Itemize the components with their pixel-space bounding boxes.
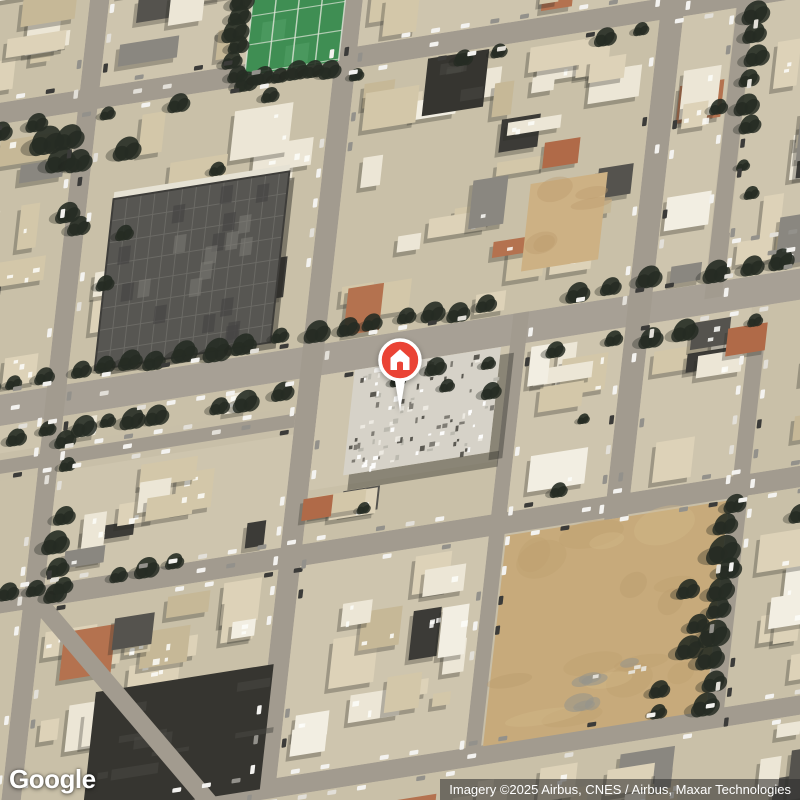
location-marker[interactable] <box>370 330 430 430</box>
map-viewport[interactable]: Google Imagery ©2025 Airbus, CNES / Airb… <box>0 0 800 800</box>
attribution-text: Imagery ©2025 Airbus, CNES / Airbus, Max… <box>449 782 791 797</box>
google-logo[interactable]: Google <box>9 764 96 795</box>
attribution-bar: Imagery ©2025 Airbus, CNES / Airbus, Max… <box>440 779 800 800</box>
